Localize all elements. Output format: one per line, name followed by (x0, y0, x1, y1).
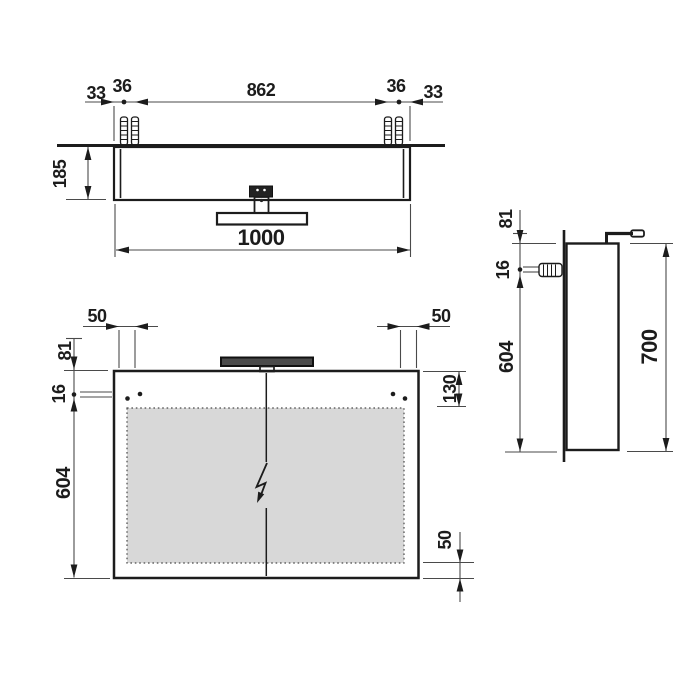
dim-arrow (517, 275, 524, 288)
front-view: 50 50 81 16 (49, 306, 474, 602)
light-fixture-plan (217, 186, 307, 225)
dim-label-edge-right: 50 (431, 306, 451, 326)
cabinet-front (114, 358, 419, 579)
dim-arrow (135, 323, 148, 330)
dim-arrow (116, 247, 129, 254)
lamp-mount-block (250, 186, 273, 197)
wall-anchor-body (539, 264, 562, 277)
dim-label-offset-left: 33 (86, 83, 106, 103)
cabinet-body-side (567, 244, 619, 451)
dim-label-depth: 185 (50, 159, 70, 188)
dim-arrow (106, 323, 119, 330)
dim-label-top-inset: 130 (440, 374, 460, 403)
dim-label-overall-height: 700 (637, 329, 662, 364)
lamp-head-front (221, 358, 313, 367)
wall-anchor-icon (385, 117, 392, 145)
lamp-stem-screw (260, 199, 263, 202)
lamp-mount-screw (263, 189, 266, 192)
dim-label-hole-to-bottom: 604 (53, 466, 75, 499)
dim-arrow (375, 99, 388, 106)
dim-arrow (85, 147, 92, 160)
dim-label-lamp-to-top: 81 (55, 341, 75, 361)
dim-arrow (85, 186, 92, 199)
dim-arrow (417, 323, 430, 330)
mounting-hole-dot (125, 396, 130, 401)
overall-height-dimension: 700 (627, 244, 673, 452)
dimension-dot (122, 100, 127, 105)
cabinet-side-outline (564, 230, 644, 462)
dim-arrow (71, 399, 78, 412)
dim-label-hole-to-bottom: 604 (496, 340, 518, 373)
light-fixture-side (605, 230, 644, 243)
mounting-hole-dot (138, 392, 143, 397)
dim-arrow (388, 323, 401, 330)
dim-arrow (663, 244, 670, 257)
dim-arrow (397, 247, 410, 254)
technical-drawing-svg: 33 36 862 36 33 (0, 0, 700, 700)
dim-arrow (457, 550, 464, 563)
dim-label-lamp-to-top: 81 (496, 209, 516, 229)
lamp-mount-screw (256, 189, 259, 192)
dim-arrow (517, 439, 524, 452)
dim-arrow (663, 438, 670, 451)
mounting-hole-dot (391, 392, 396, 397)
dim-label-hole-offset: 16 (493, 260, 513, 280)
dim-label-anchor-gap-left: 36 (112, 76, 132, 96)
lamp-head-plan (217, 213, 307, 225)
dimension-dot (518, 267, 523, 272)
side-view: 81 16 604 (493, 209, 673, 462)
wall-anchor-icon (121, 117, 128, 145)
front-left-dimension-chain: 81 16 604 (49, 338, 112, 579)
technical-drawing-page: 33 36 862 36 33 (0, 0, 700, 700)
dim-arrow (517, 230, 524, 243)
depth-dimension: 185 (50, 147, 106, 200)
mounting-hole-dot (403, 396, 408, 401)
bottom-inset-dimension: 50 (423, 530, 474, 602)
dimension-dot (397, 100, 402, 105)
dimension-dot (72, 392, 77, 397)
edge-offset-left-dimension: 50 (83, 306, 158, 368)
dim-arrow (71, 565, 78, 578)
wall-anchor-icons-top (121, 117, 403, 145)
dim-label-edge-left: 50 (87, 306, 107, 326)
top-inset-dimension: 130 (423, 372, 466, 407)
dim-label-overall-width: 1000 (238, 225, 285, 250)
dim-label-hole-offset: 16 (49, 384, 69, 404)
wall-anchor-icon (396, 117, 403, 145)
dim-label-bottom-inset: 50 (435, 530, 455, 550)
top-view: 33 36 862 36 33 (50, 76, 445, 257)
edge-offset-right-dimension: 50 (377, 306, 451, 368)
dim-arrow (457, 579, 464, 592)
wall-anchor-icon-side (539, 264, 562, 277)
side-left-dimension-chain: 81 16 604 (493, 209, 557, 452)
dim-arrow (410, 99, 423, 106)
lamp-stem-front (260, 367, 274, 372)
light-fixture-front (221, 358, 313, 372)
dim-arrow (135, 99, 148, 106)
dim-label-anchor-gap-right: 36 (386, 76, 406, 96)
dim-label-offset-right: 33 (423, 82, 443, 102)
dim-label-anchor-span: 862 (247, 80, 276, 100)
wall-anchor-icon (132, 117, 139, 145)
